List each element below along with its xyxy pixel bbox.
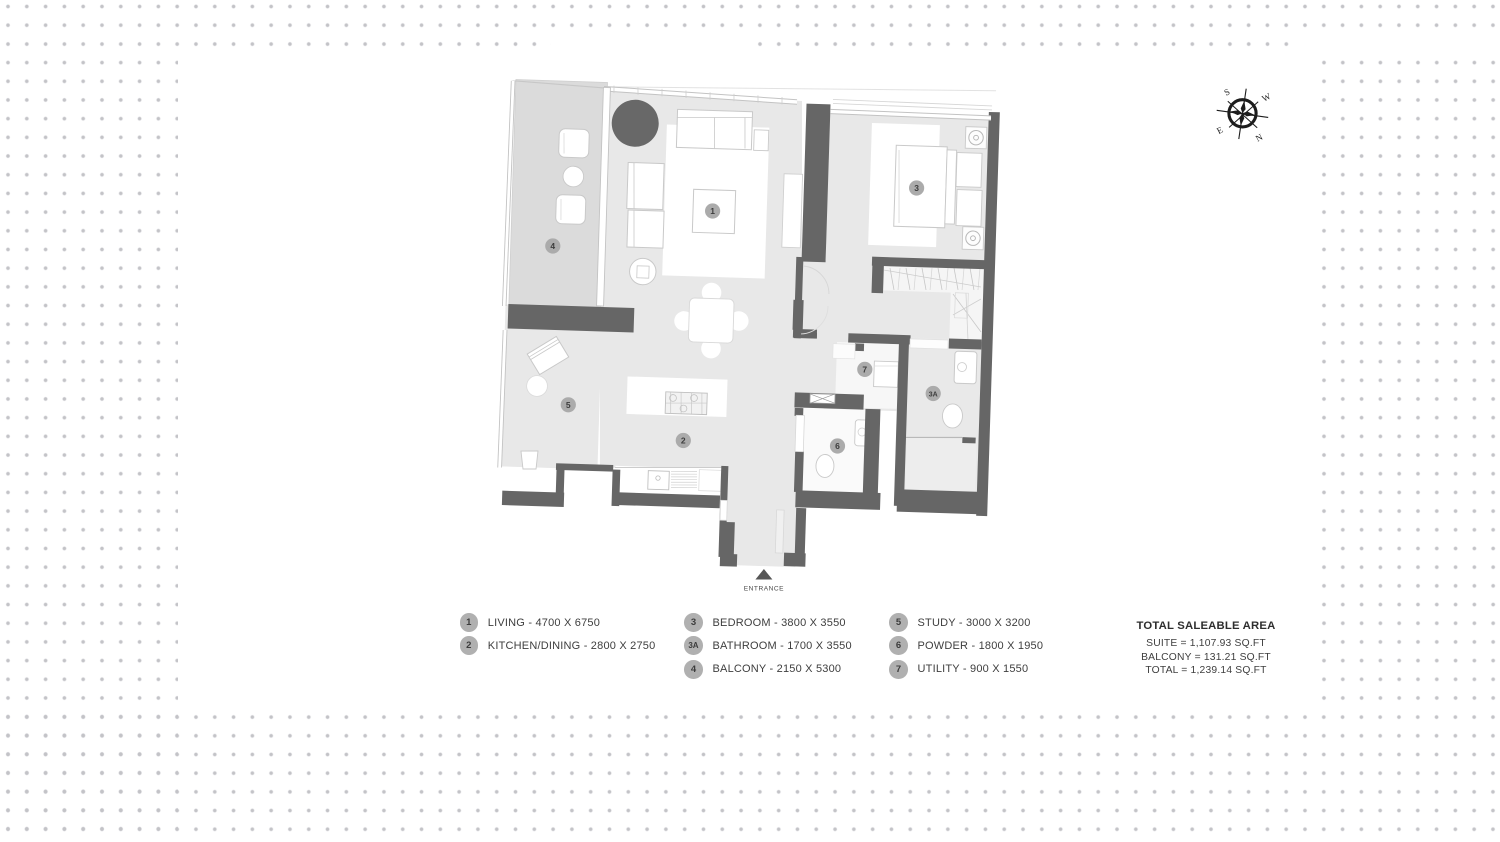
svg-text:E: E <box>1215 124 1225 136</box>
svg-text:S: S <box>1222 86 1231 97</box>
svg-text:6: 6 <box>835 441 840 451</box>
svg-text:1: 1 <box>710 206 715 216</box>
svg-text:5: 5 <box>566 400 571 410</box>
svg-text:ENTRANCE: ENTRANCE <box>744 586 784 593</box>
svg-text:2: 2 <box>681 436 686 446</box>
svg-text:W: W <box>1260 91 1273 104</box>
svg-text:7: 7 <box>862 364 867 374</box>
svg-text:3A: 3A <box>929 392 938 399</box>
svg-text:3: 3 <box>914 183 919 193</box>
svg-text:4: 4 <box>550 241 555 251</box>
svg-text:N: N <box>1254 132 1265 144</box>
